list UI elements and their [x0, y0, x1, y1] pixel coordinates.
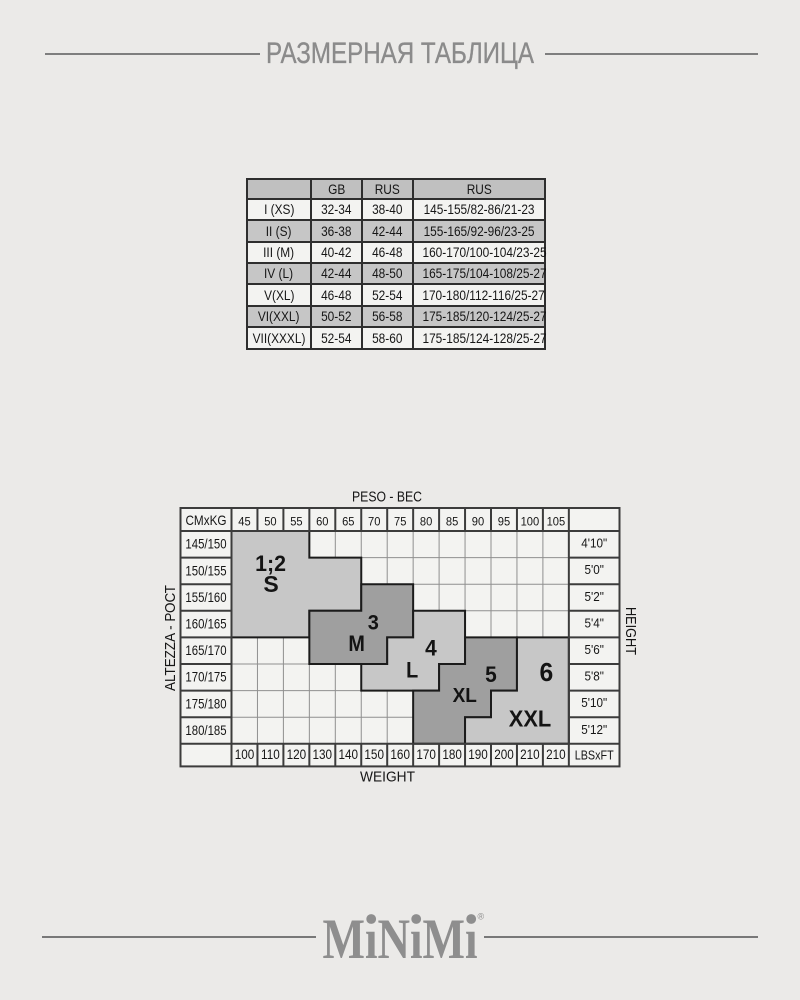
svg-text:70: 70	[368, 515, 381, 529]
svg-text:5'12": 5'12"	[581, 722, 607, 737]
svg-text:5'10": 5'10"	[581, 696, 607, 711]
svg-text:L: L	[406, 659, 418, 683]
svg-text:180: 180	[442, 746, 462, 762]
svg-text:XXL: XXL	[509, 706, 551, 732]
svg-text:80: 80	[420, 515, 433, 529]
svg-text:150: 150	[364, 746, 384, 762]
svg-text:100: 100	[235, 746, 255, 762]
svg-text:105: 105	[547, 515, 566, 529]
svg-text:CMxKG: CMxKG	[185, 513, 226, 528]
svg-text:6: 6	[540, 658, 554, 687]
svg-text:55: 55	[290, 515, 303, 529]
svg-text:180/185: 180/185	[185, 723, 226, 738]
svg-text:4'10": 4'10"	[581, 536, 607, 551]
svg-text:160: 160	[390, 746, 410, 762]
svg-text:90: 90	[472, 515, 485, 529]
svg-text:5'2": 5'2"	[585, 589, 604, 604]
svg-text:50: 50	[264, 515, 277, 529]
svg-text:190: 190	[468, 746, 488, 762]
svg-text:145/150: 145/150	[185, 537, 226, 552]
svg-text:120: 120	[287, 746, 307, 762]
svg-text:45: 45	[238, 515, 251, 529]
svg-text:LBSxFT: LBSxFT	[575, 747, 615, 762]
svg-text:100: 100	[521, 515, 540, 529]
svg-text:85: 85	[446, 515, 459, 529]
svg-text:®: ®	[478, 912, 485, 922]
svg-text:170/175: 170/175	[185, 670, 226, 685]
svg-text:5: 5	[485, 663, 497, 688]
svg-text:155/160: 155/160	[185, 590, 226, 605]
svg-text:170: 170	[416, 746, 436, 762]
svg-text:5'8": 5'8"	[585, 669, 604, 684]
svg-text:XL: XL	[453, 685, 477, 708]
svg-text:WEIGHT: WEIGHT	[360, 770, 415, 786]
svg-text:150/155: 150/155	[185, 563, 226, 578]
svg-text:5'4": 5'4"	[585, 616, 604, 631]
svg-text:75: 75	[394, 515, 407, 529]
svg-text:165/170: 165/170	[185, 643, 226, 658]
svg-text:95: 95	[498, 515, 511, 529]
svg-text:60: 60	[316, 515, 329, 529]
svg-text:210: 210	[546, 746, 566, 762]
svg-text:130: 130	[313, 746, 333, 762]
svg-text:ALTEZZA - РОСТ: ALTEZZA - РОСТ	[162, 585, 179, 691]
svg-text:PESO - ВЕС: PESO - ВЕС	[352, 490, 422, 506]
svg-text:210: 210	[520, 746, 540, 762]
svg-text:140: 140	[339, 746, 359, 762]
svg-text:S: S	[263, 571, 278, 597]
svg-text:5'0": 5'0"	[585, 563, 604, 578]
svg-text:5'6": 5'6"	[585, 642, 604, 657]
svg-text:200: 200	[494, 746, 514, 762]
svg-text:MıNıMı: MıNıMı	[323, 908, 478, 971]
svg-text:M: M	[348, 632, 364, 656]
svg-text:160/165: 160/165	[185, 617, 226, 632]
svg-text:65: 65	[342, 515, 355, 529]
svg-text:110: 110	[261, 746, 280, 762]
svg-text:4: 4	[425, 636, 437, 661]
svg-text:3: 3	[368, 611, 379, 635]
svg-text:175/180: 175/180	[185, 696, 226, 711]
svg-text:HEIGHT: HEIGHT	[622, 607, 639, 655]
